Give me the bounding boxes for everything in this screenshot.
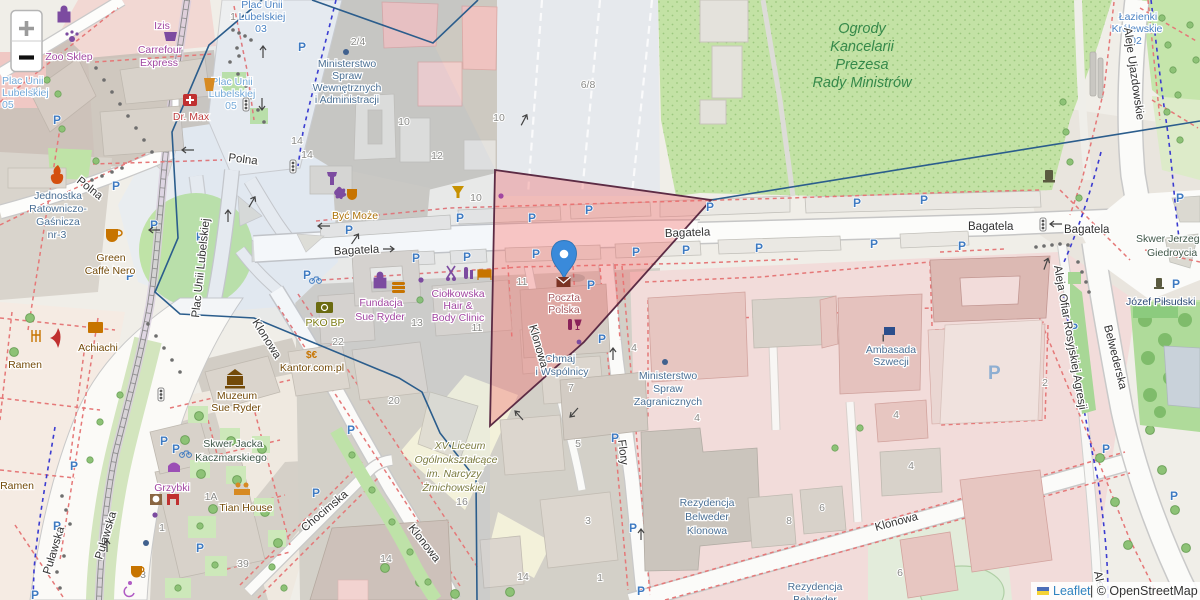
svg-text:Gaśnicza: Gaśnicza xyxy=(36,216,80,228)
svg-text:10: 10 xyxy=(493,112,505,124)
svg-text:P: P xyxy=(312,486,320,500)
svg-text:Sue Ryder: Sue Ryder xyxy=(211,402,261,414)
svg-text:P: P xyxy=(528,211,536,225)
svg-text:P: P xyxy=(706,200,714,214)
svg-text:$€: $€ xyxy=(306,350,318,361)
svg-text:P: P xyxy=(629,521,637,535)
svg-text:03: 03 xyxy=(255,23,267,35)
svg-text:Ratowniczo-: Ratowniczo- xyxy=(29,203,87,215)
svg-text:P: P xyxy=(870,237,878,251)
svg-text:P: P xyxy=(632,245,640,259)
svg-text:6: 6 xyxy=(897,567,903,579)
svg-text:11: 11 xyxy=(517,276,528,288)
svg-text:14: 14 xyxy=(380,553,392,565)
svg-text:Grzybki: Grzybki xyxy=(154,482,190,494)
svg-text:P: P xyxy=(532,247,540,261)
svg-text:Poczta: Poczta xyxy=(548,292,580,304)
svg-text:Lubelskiej: Lubelskiej xyxy=(2,87,49,99)
svg-text:P: P xyxy=(958,239,966,253)
svg-text:Ramen: Ramen xyxy=(8,359,42,371)
svg-text:Leaflet: Leaflet xyxy=(1053,584,1091,598)
svg-text:P: P xyxy=(112,179,120,193)
svg-text:P: P xyxy=(1102,442,1110,456)
svg-text:10: 10 xyxy=(470,192,482,204)
svg-text:3: 3 xyxy=(585,515,591,527)
svg-text:Ministerstwo: Ministerstwo xyxy=(639,370,698,382)
svg-text:Rady Ministrów: Rady Ministrów xyxy=(812,75,913,91)
svg-text:Polska: Polska xyxy=(548,304,580,316)
svg-text:Ogólnokształcące: Ogólnokształcące xyxy=(415,454,498,466)
svg-text:P: P xyxy=(456,211,464,225)
svg-text:Bagatela: Bagatela xyxy=(334,244,381,258)
svg-text:P: P xyxy=(682,243,690,257)
svg-text:Plac Unii: Plac Unii xyxy=(2,75,43,87)
svg-text:10: 10 xyxy=(398,116,410,128)
svg-text:4: 4 xyxy=(893,409,899,421)
svg-text:Tian House: Tian House xyxy=(219,502,272,514)
svg-text:Sue Ryder: Sue Ryder xyxy=(355,311,405,323)
svg-text:Spraw: Spraw xyxy=(653,383,683,395)
svg-text:P: P xyxy=(70,459,78,473)
svg-text:Wewnętrznych: Wewnętrznych xyxy=(313,82,382,94)
svg-text:Zagranicznych: Zagranicznych xyxy=(634,396,702,408)
svg-text:P: P xyxy=(1172,277,1180,291)
svg-text:Bagatela: Bagatela xyxy=(968,221,1014,233)
svg-text:05: 05 xyxy=(225,100,237,112)
svg-text:Caffè Nero: Caffè Nero xyxy=(85,265,136,277)
svg-text:20: 20 xyxy=(388,395,400,407)
svg-text:22: 22 xyxy=(332,336,344,348)
svg-text:Plac Unii: Plac Unii xyxy=(211,76,252,88)
svg-text:XV Liceum: XV Liceum xyxy=(434,440,486,452)
svg-text:Muzeum: Muzeum xyxy=(217,390,258,402)
svg-text:Szwecji: Szwecji xyxy=(873,356,909,368)
svg-text:P: P xyxy=(196,541,204,555)
svg-text:4: 4 xyxy=(631,342,637,354)
svg-text:nr-3: nr-3 xyxy=(48,229,67,241)
svg-text:Giedroycia: Giedroycia xyxy=(1147,247,1197,259)
svg-text:2/4: 2/4 xyxy=(351,36,366,48)
svg-text:Plac Unii: Plac Unii xyxy=(241,0,282,11)
svg-text:Carrefour: Carrefour xyxy=(138,44,183,56)
svg-text:Kantor.com.pl: Kantor.com.pl xyxy=(280,362,344,374)
svg-text:2: 2 xyxy=(1042,377,1048,389)
svg-text:5: 5 xyxy=(575,438,581,450)
svg-text:Achiachi: Achiachi xyxy=(78,342,118,354)
svg-text:16: 16 xyxy=(456,496,468,508)
svg-text:Spraw: Spraw xyxy=(332,70,362,82)
svg-text:| © OpenStreetMap: | © OpenStreetMap xyxy=(1090,584,1198,598)
svg-text:P: P xyxy=(598,332,606,346)
svg-text:Izis: Izis xyxy=(154,20,170,32)
svg-text:39: 39 xyxy=(237,558,249,570)
svg-text:14: 14 xyxy=(517,571,529,583)
svg-text:6/8: 6/8 xyxy=(581,79,596,91)
svg-text:PKO BP: PKO BP xyxy=(305,317,344,329)
svg-text:7: 7 xyxy=(568,382,574,394)
svg-text:1A: 1A xyxy=(205,491,218,503)
svg-text:i Administracji: i Administracji xyxy=(315,94,379,106)
svg-text:P: P xyxy=(463,250,471,264)
svg-text:P: P xyxy=(1170,489,1178,503)
svg-text:6: 6 xyxy=(819,502,825,514)
svg-text:Ciołkowska: Ciołkowska xyxy=(431,288,484,300)
svg-text:Bagatela: Bagatela xyxy=(665,226,711,240)
svg-text:P: P xyxy=(347,423,355,437)
svg-text:1: 1 xyxy=(230,11,236,23)
svg-text:P: P xyxy=(853,196,861,210)
svg-text:Skwer Jacka: Skwer Jacka xyxy=(203,438,263,450)
svg-text:Zoo Sklep: Zoo Sklep xyxy=(45,51,92,63)
svg-text:Express: Express xyxy=(140,57,178,69)
svg-text:P: P xyxy=(160,434,168,448)
svg-text:P: P xyxy=(920,193,928,207)
svg-text:Belweder: Belweder xyxy=(793,594,837,600)
svg-text:4: 4 xyxy=(694,412,700,424)
svg-text:11: 11 xyxy=(472,322,483,334)
svg-text:Belweder: Belweder xyxy=(685,511,729,523)
svg-text:Rezydencja: Rezydencja xyxy=(680,497,735,509)
svg-text:Ambasada: Ambasada xyxy=(866,344,916,356)
svg-text:P: P xyxy=(585,203,593,217)
svg-text:P: P xyxy=(172,442,180,456)
svg-text:P: P xyxy=(755,241,763,255)
svg-text:Bagatela: Bagatela xyxy=(1064,224,1110,236)
svg-text:Królewskie: Królewskie xyxy=(1112,23,1163,35)
svg-text:1: 1 xyxy=(597,572,603,584)
svg-text:im. Narcyzy: im. Narcyzy xyxy=(427,468,483,480)
svg-text:P: P xyxy=(298,40,306,54)
svg-text:P: P xyxy=(412,251,420,265)
svg-text:P: P xyxy=(31,588,39,600)
svg-text:12: 12 xyxy=(431,150,443,162)
svg-text:Kancelarii: Kancelarii xyxy=(830,39,894,55)
svg-text:14: 14 xyxy=(301,149,313,161)
svg-text:13: 13 xyxy=(411,317,423,329)
svg-text:Klonowa: Klonowa xyxy=(687,525,727,537)
svg-text:Rezydencja: Rezydencja xyxy=(788,581,843,593)
svg-text:4: 4 xyxy=(908,460,914,472)
svg-text:1: 1 xyxy=(159,522,165,534)
svg-text:Być Może: Być Może xyxy=(332,210,378,222)
svg-text:P: P xyxy=(53,113,61,127)
svg-text:P: P xyxy=(587,278,595,292)
svg-text:Żmichowskiej: Żmichowskiej xyxy=(421,482,486,494)
svg-text:Dr. Max: Dr. Max xyxy=(173,111,210,123)
svg-text:8: 8 xyxy=(786,515,792,527)
svg-text:i Wspólnicy: i Wspólnicy xyxy=(535,366,589,378)
svg-text:14: 14 xyxy=(291,135,303,147)
svg-text:P: P xyxy=(988,363,1001,384)
svg-text:P: P xyxy=(1176,191,1184,205)
svg-text:Green: Green xyxy=(96,252,125,264)
svg-text:P: P xyxy=(345,223,353,237)
svg-text:Ministerstwo: Ministerstwo xyxy=(318,58,377,70)
svg-text:P: P xyxy=(637,584,645,598)
svg-text:Jednostka: Jednostka xyxy=(34,190,82,202)
svg-text:Prezesa: Prezesa xyxy=(835,57,888,73)
svg-text:Józef Piłsudski: Józef Piłsudski xyxy=(1126,296,1195,308)
svg-text:05: 05 xyxy=(2,99,14,111)
svg-text:Ramen: Ramen xyxy=(0,480,34,492)
svg-text:Fundacja: Fundacja xyxy=(359,297,402,309)
svg-text:Skwer Jerzeg: Skwer Jerzeg xyxy=(1136,233,1200,245)
svg-text:Hair &: Hair & xyxy=(443,300,472,312)
svg-text:Ogrody: Ogrody xyxy=(838,21,886,37)
svg-text:Kaczmarskiego: Kaczmarskiego xyxy=(195,452,267,464)
svg-text:Łazienki: Łazienki xyxy=(1119,11,1158,23)
svg-text:Lubelskiej: Lubelskiej xyxy=(239,11,286,23)
